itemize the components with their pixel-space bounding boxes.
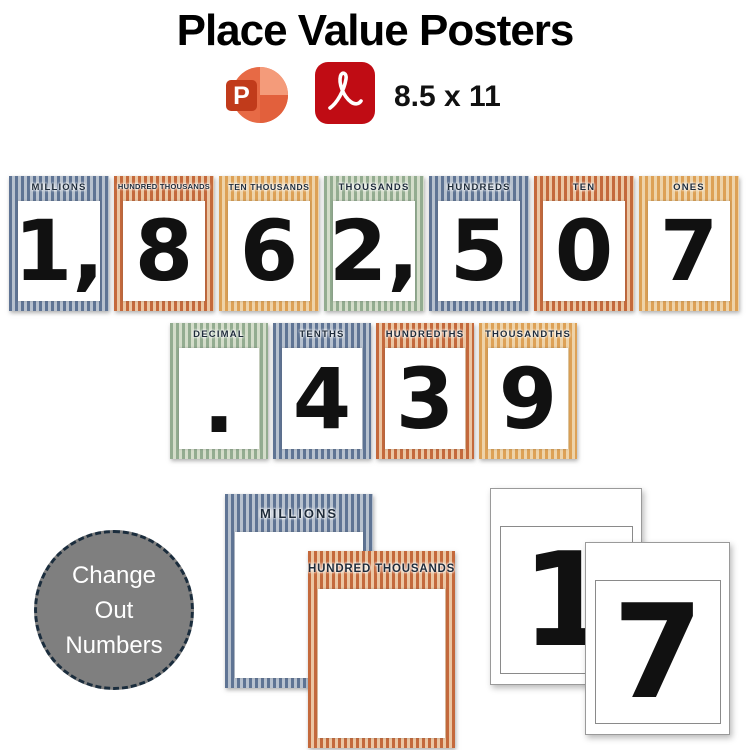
card-digit: 2,	[329, 209, 419, 293]
card-number-window: 7	[648, 201, 730, 301]
card-label: DECIMAL	[170, 329, 268, 340]
pdf-icon	[315, 62, 375, 124]
card-hundred-thousands: HUNDRED THOUSANDS 8	[114, 176, 214, 311]
card-digit: 6	[240, 209, 298, 293]
card-decimal: DECIMAL .	[170, 323, 268, 459]
number-page-frame: 7	[595, 580, 721, 724]
card-label: THOUSANDTHS	[479, 329, 577, 340]
card-number-window: 4	[282, 348, 362, 449]
card-label: TENTHS	[273, 329, 371, 340]
card-number-window: 6	[228, 201, 310, 301]
card-ones: ONES 7	[639, 176, 739, 311]
card-label: ONES	[639, 182, 739, 193]
card-millions: MILLIONS 1,	[9, 176, 109, 311]
card-digit: 7	[660, 209, 718, 293]
card-digit: 0	[555, 209, 613, 293]
page-size-label: 8.5 x 11	[394, 80, 501, 114]
card-label: MILLIONS	[9, 182, 109, 193]
card-digit: .	[203, 361, 235, 445]
card-digit: 1,	[14, 209, 104, 293]
badge-line: Change	[72, 558, 156, 593]
card-label: HUNDREDS	[429, 182, 529, 193]
card-number-window: 8	[123, 201, 205, 301]
card-number-window: 3	[385, 348, 465, 449]
card-label: TEN	[534, 182, 634, 193]
card-hundreds: HUNDREDS 5	[429, 176, 529, 311]
number-page-7: 7	[585, 542, 730, 735]
card-label: TEN THOUSANDS	[219, 182, 319, 192]
badge-line: Out	[95, 593, 134, 628]
card-hundredths: HUNDREDTHS 3	[376, 323, 474, 459]
change-out-numbers-badge: Change Out Numbers	[34, 530, 194, 690]
card-digit: 8	[135, 209, 193, 293]
svg-text:P: P	[233, 82, 250, 110]
card-ten: TEN 0	[534, 176, 634, 311]
card-number-window: .	[179, 348, 259, 449]
poster-label: MILLIONS	[225, 506, 373, 521]
card-label: HUNDREDTHS	[376, 329, 474, 340]
card-label: HUNDRED THOUSANDS	[114, 182, 214, 191]
card-number-window: 1,	[18, 201, 100, 301]
card-number-window: 2,	[333, 201, 415, 301]
card-ten-thousands: TEN THOUSANDS 6	[219, 176, 319, 311]
card-number-window: 5	[438, 201, 520, 301]
badge-line: Numbers	[65, 628, 162, 663]
page-title: Place Value Posters	[0, 6, 750, 56]
poster-hundred-thousands: HUNDRED THOUSANDS	[308, 551, 455, 748]
card-digit: 3	[396, 357, 454, 441]
powerpoint-icon: P	[223, 62, 289, 128]
page-digit: 7	[613, 587, 703, 717]
card-label: THOUSANDS	[324, 182, 424, 193]
card-thousands: THOUSANDS 2,	[324, 176, 424, 311]
card-digit: 9	[499, 357, 557, 441]
card-number-window: 9	[488, 348, 568, 449]
poster-blank-window	[318, 589, 445, 738]
card-thousandths: THOUSANDTHS 9	[479, 323, 577, 459]
card-tenths: TENTHS 4	[273, 323, 371, 459]
card-digit: 4	[293, 357, 351, 441]
card-number-window: 0	[543, 201, 625, 301]
poster-label: HUNDRED THOUSANDS	[308, 563, 455, 575]
card-digit: 5	[450, 209, 508, 293]
